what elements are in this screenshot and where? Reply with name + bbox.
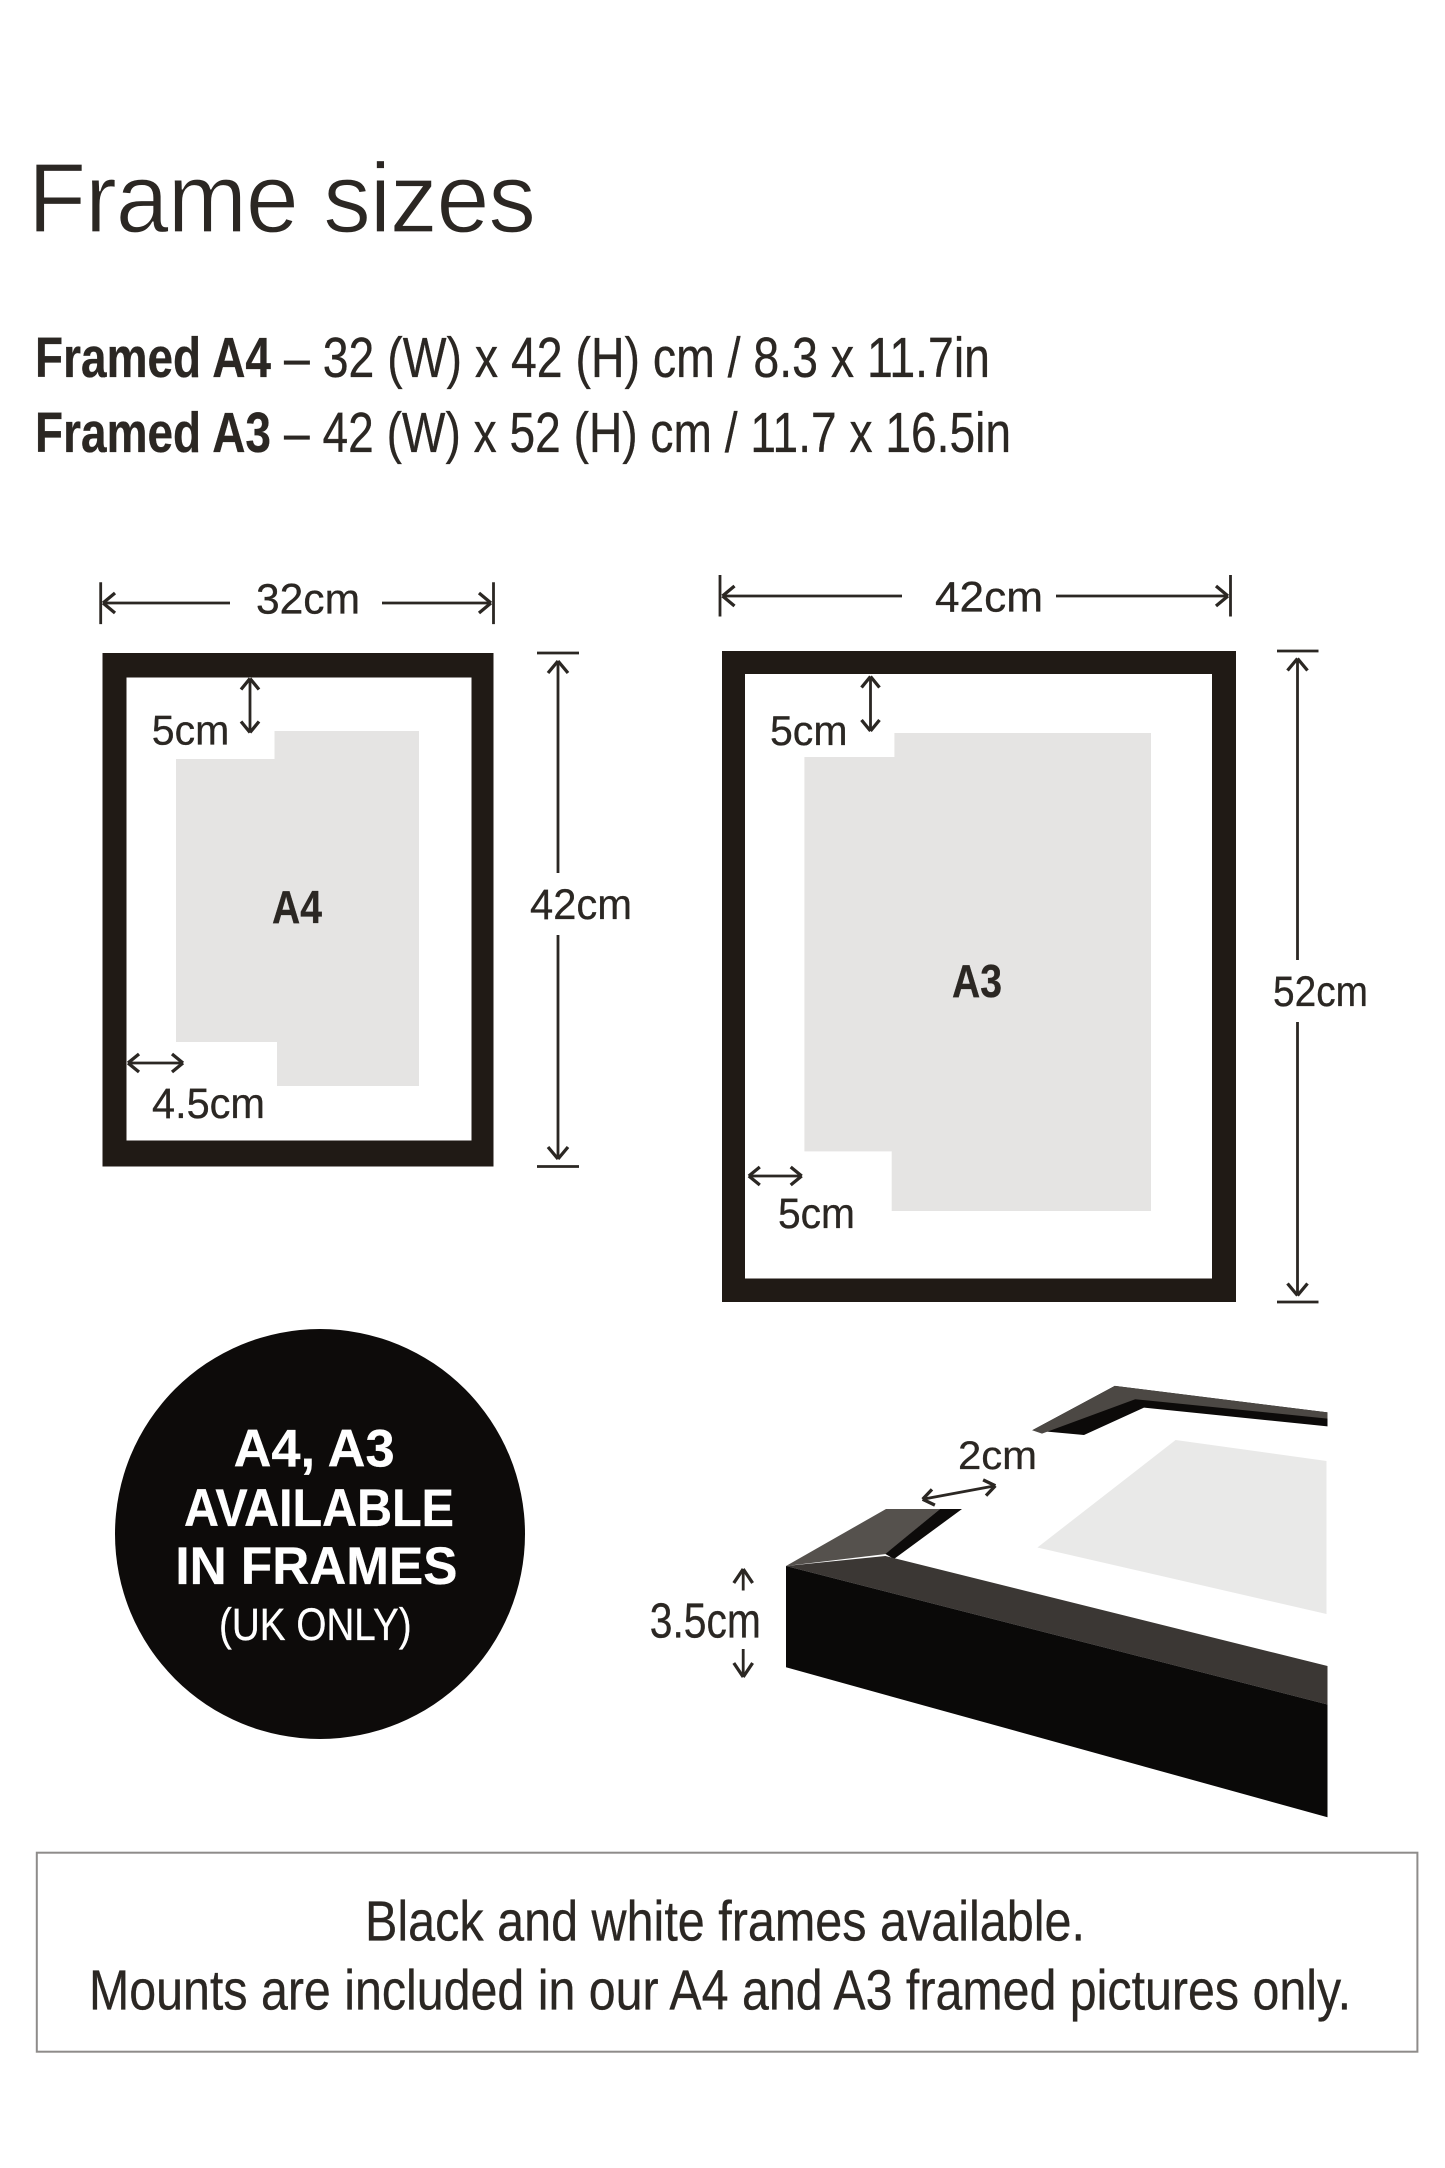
svg-text:Black and white frames availab: Black and white frames available. — [365, 1890, 1085, 1954]
svg-text:A4, A3: A4, A3 — [234, 1420, 395, 1479]
svg-text:Mounts are included in our A4: Mounts are included in our A4 and A3 fra… — [89, 1959, 1351, 2023]
svg-text:Frame sizes: Frame sizes — [28, 143, 535, 253]
svg-text:Framed A4: Framed A4 — [35, 326, 271, 390]
svg-text:IN FRAMES: IN FRAMES — [175, 1537, 457, 1596]
svg-text:Framed A3: Framed A3 — [35, 401, 271, 465]
svg-text:42cm: 42cm — [935, 574, 1043, 622]
svg-text:42cm: 42cm — [530, 881, 632, 929]
svg-text:52cm: 52cm — [1273, 968, 1368, 1016]
svg-text:3.5cm: 3.5cm — [650, 1595, 761, 1649]
svg-text:AVAILABLE: AVAILABLE — [184, 1479, 454, 1538]
svg-text:32cm: 32cm — [256, 576, 360, 624]
svg-text:5cm: 5cm — [778, 1190, 855, 1238]
svg-text:A3: A3 — [952, 955, 1002, 1007]
svg-text:– 32 (W) x 42 (H) cm / 8.3 x 1: – 32 (W) x 42 (H) cm / 8.3 x 11.7in — [284, 326, 990, 390]
svg-text:5cm: 5cm — [770, 707, 848, 754]
svg-text:2cm: 2cm — [958, 1434, 1037, 1478]
svg-text:(UK ONLY): (UK ONLY) — [219, 1599, 412, 1650]
svg-text:4.5cm: 4.5cm — [152, 1080, 265, 1128]
svg-text:A4: A4 — [272, 881, 322, 933]
svg-text:5cm: 5cm — [152, 707, 230, 754]
svg-text:– 42 (W) x 52 (H) cm / 11.7 x: – 42 (W) x 52 (H) cm / 11.7 x 16.5in — [284, 401, 1011, 465]
